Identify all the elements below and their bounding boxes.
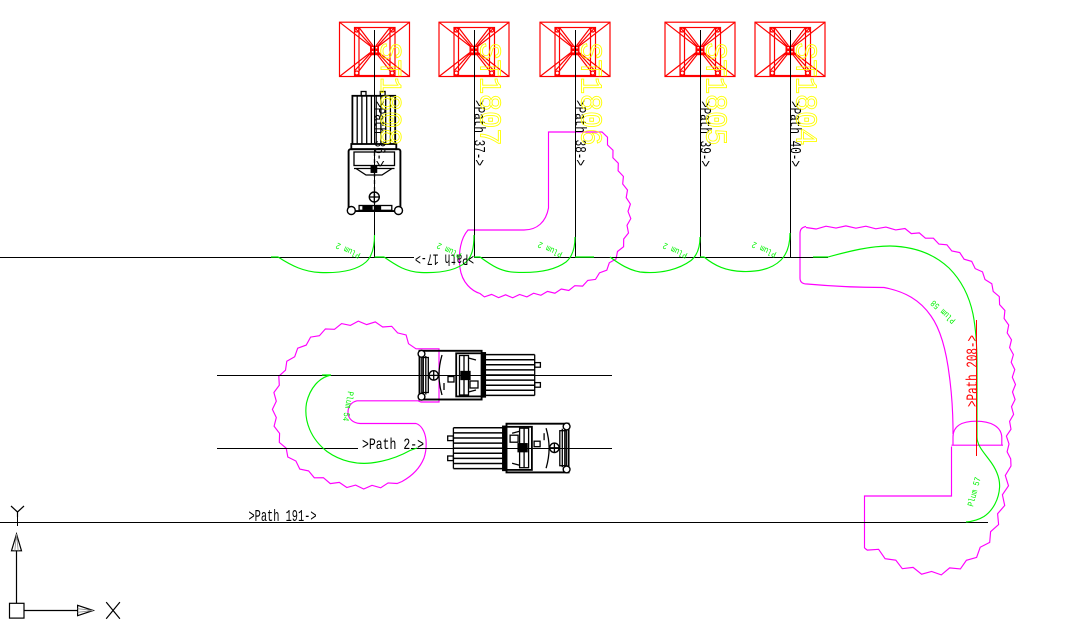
svg-text:ST1808: ST1808 bbox=[371, 43, 406, 146]
svg-text:Plum 54: Plum 54 bbox=[340, 390, 355, 421]
svg-text:Plum 58: Plum 58 bbox=[929, 298, 958, 326]
svg-text:Plum 2: Plum 2 bbox=[750, 239, 778, 259]
svg-text:>Path 191->: >Path 191-> bbox=[249, 508, 317, 527]
svg-text:ST1804: ST1804 bbox=[787, 43, 822, 146]
svg-text:Plum 2: Plum 2 bbox=[536, 239, 564, 259]
svg-text:Plum 2: Plum 2 bbox=[334, 240, 362, 260]
svg-text:>Path 208->: >Path 208-> bbox=[964, 335, 982, 407]
svg-text:ST1805: ST1805 bbox=[697, 43, 732, 146]
svg-text:Plum 2: Plum 2 bbox=[661, 240, 689, 260]
svg-text:Plum 57: Plum 57 bbox=[966, 476, 983, 508]
svg-text:ST1806: ST1806 bbox=[572, 43, 607, 146]
svg-text:>Path 2->: >Path 2-> bbox=[362, 436, 424, 454]
svg-text:ST1807: ST1807 bbox=[471, 43, 506, 146]
